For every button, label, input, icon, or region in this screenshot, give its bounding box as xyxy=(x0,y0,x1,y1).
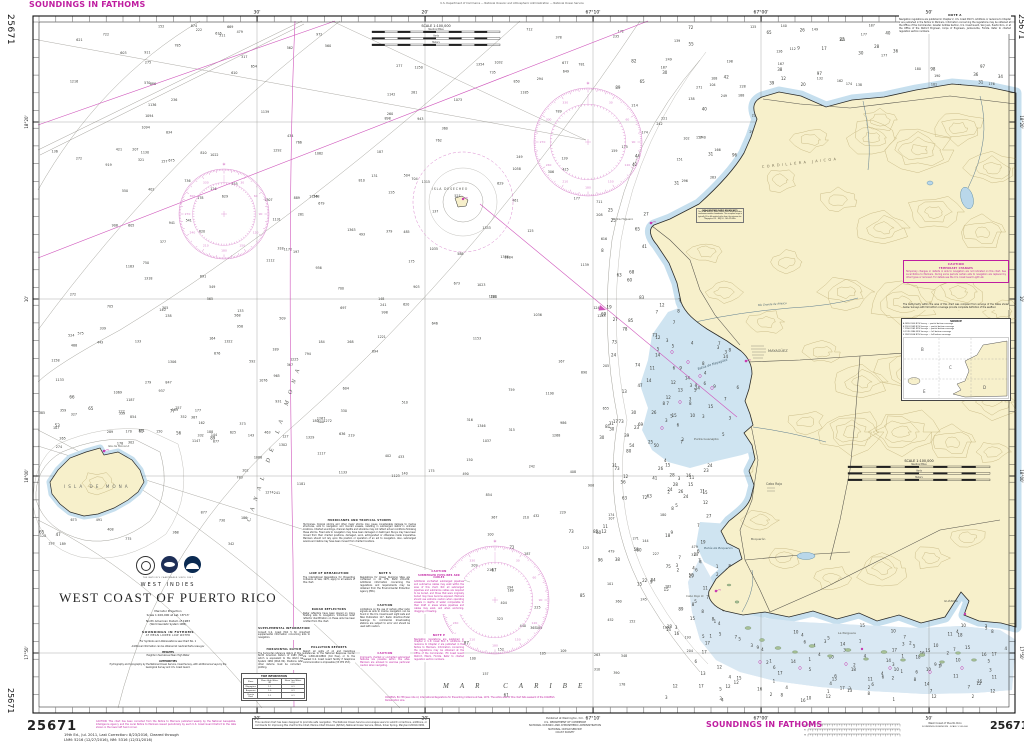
svg-text:143: 143 xyxy=(248,433,254,437)
source-diagram-map: BCDE xyxy=(903,337,1009,399)
svg-text:90: 90 xyxy=(632,140,636,144)
svg-text:34: 34 xyxy=(998,74,1004,79)
svg-text:187: 187 xyxy=(869,24,875,28)
svg-text:332: 332 xyxy=(197,434,203,438)
svg-text:3: 3 xyxy=(676,563,679,568)
svg-text:177: 177 xyxy=(861,33,867,37)
svg-text:1139: 1139 xyxy=(261,110,269,114)
label-guanica: GUÁNICA xyxy=(944,598,959,603)
svg-text:148: 148 xyxy=(378,297,384,301)
svg-text:11: 11 xyxy=(703,585,709,590)
svg-text:9: 9 xyxy=(671,530,674,535)
svg-text:180: 180 xyxy=(312,419,318,423)
svg-text:180: 180 xyxy=(660,513,666,517)
svg-text:9: 9 xyxy=(650,580,653,585)
svg-text:300: 300 xyxy=(190,194,196,198)
svg-text:911: 911 xyxy=(144,50,150,54)
svg-text:30': 30' xyxy=(254,10,261,16)
svg-text:443: 443 xyxy=(97,340,103,344)
svg-text:1117: 1117 xyxy=(317,452,325,456)
svg-text:509: 509 xyxy=(279,317,285,321)
label-mayaguez-city: MAYAGÜEZ xyxy=(768,348,788,353)
svg-text:7: 7 xyxy=(734,634,737,639)
svg-text:31: 31 xyxy=(612,463,618,468)
svg-text:152: 152 xyxy=(158,24,164,28)
svg-text:133: 133 xyxy=(237,309,243,313)
svg-text:479: 479 xyxy=(608,550,614,554)
svg-text:4: 4 xyxy=(704,370,707,375)
rose-north-star-icon: ✶ xyxy=(222,162,226,168)
svg-text:676: 676 xyxy=(214,352,220,356)
svg-text:10: 10 xyxy=(690,413,696,418)
label-cabo-rojo-light: Cabo Rojo Lt xyxy=(686,594,705,598)
svg-text:Meters: Meters xyxy=(432,41,440,44)
svg-text:28: 28 xyxy=(874,44,880,49)
svg-text:2: 2 xyxy=(909,640,912,645)
svg-text:30: 30 xyxy=(609,101,613,105)
svg-text:1346: 1346 xyxy=(477,424,485,428)
svg-text:1142: 1142 xyxy=(387,92,395,96)
authorities-text: Hydrography and topography by the Nation… xyxy=(108,663,228,669)
svg-text:479: 479 xyxy=(237,30,243,34)
svg-text:1112: 1112 xyxy=(266,259,274,263)
svg-text:67°00': 67°00' xyxy=(754,10,769,16)
source-note: The bathymetry within the area of this c… xyxy=(903,304,1009,310)
svg-text:10: 10 xyxy=(793,630,799,635)
svg-text:10: 10 xyxy=(689,573,695,578)
svg-text:415: 415 xyxy=(562,168,568,172)
svg-text:365: 365 xyxy=(530,626,536,630)
svg-text:Yards: Yards xyxy=(916,470,923,473)
svg-text:12: 12 xyxy=(734,680,740,685)
svg-text:377: 377 xyxy=(160,240,166,244)
svg-text:17: 17 xyxy=(778,671,784,676)
svg-text:180: 180 xyxy=(492,644,498,648)
svg-text:491: 491 xyxy=(96,518,102,522)
svg-text:646: 646 xyxy=(432,321,438,325)
svg-text:675: 675 xyxy=(168,158,174,162)
svg-text:367: 367 xyxy=(491,515,497,519)
svg-text:7: 7 xyxy=(678,555,681,560)
svg-text:36: 36 xyxy=(973,72,979,77)
svg-text:1302: 1302 xyxy=(279,443,287,447)
svg-text:4: 4 xyxy=(881,671,884,676)
svg-text:63: 63 xyxy=(647,494,653,499)
label-canal-de-la-mona: CANAL DE LA MONA xyxy=(246,362,303,523)
svg-text:1386: 1386 xyxy=(500,255,508,259)
colregs-note: COLREGS, 80.738 (see note A): Internatio… xyxy=(385,697,565,703)
svg-text:149: 149 xyxy=(812,27,818,31)
svg-text:616: 616 xyxy=(601,237,607,241)
svg-text:1306: 1306 xyxy=(168,360,176,364)
svg-text:5: 5 xyxy=(722,432,725,437)
svg-text:6: 6 xyxy=(695,659,698,664)
svg-text:55: 55 xyxy=(689,41,695,46)
svg-text:139: 139 xyxy=(561,157,567,161)
svg-text:20: 20 xyxy=(801,82,807,87)
svg-text:150: 150 xyxy=(515,637,521,641)
svg-text:1036: 1036 xyxy=(533,313,541,317)
svg-text:31: 31 xyxy=(708,152,714,157)
svg-text:323: 323 xyxy=(497,617,503,621)
svg-text:138: 138 xyxy=(856,83,862,87)
svg-text:621: 621 xyxy=(76,38,82,42)
svg-text:249: 249 xyxy=(666,57,672,61)
svg-text:235: 235 xyxy=(613,35,619,39)
svg-text:174: 174 xyxy=(846,82,852,86)
svg-text:5: 5 xyxy=(809,667,812,672)
rose-north-star-icon: ✶ xyxy=(586,81,590,87)
svg-text:306: 306 xyxy=(548,170,554,174)
svg-text:604: 604 xyxy=(343,386,349,390)
svg-text:592: 592 xyxy=(249,360,255,364)
svg-text:3: 3 xyxy=(665,695,668,700)
svg-text:669: 669 xyxy=(227,25,233,29)
svg-text:1250: 1250 xyxy=(414,66,422,70)
svg-text:140: 140 xyxy=(401,472,407,476)
svg-text:894: 894 xyxy=(372,349,378,353)
svg-text:189: 189 xyxy=(507,589,513,593)
svg-text:820: 820 xyxy=(199,229,205,233)
svg-text:12: 12 xyxy=(659,302,665,307)
svg-text:272: 272 xyxy=(76,156,82,160)
svg-text:12: 12 xyxy=(703,500,709,505)
svg-text:4: 4 xyxy=(761,647,764,652)
svg-text:20': 20' xyxy=(422,10,429,16)
svg-text:127: 127 xyxy=(282,434,288,438)
svg-text:65: 65 xyxy=(88,406,94,411)
svg-text:330: 330 xyxy=(341,409,347,413)
svg-text:15: 15 xyxy=(688,482,694,487)
svg-text:126: 126 xyxy=(776,49,782,53)
svg-text:588: 588 xyxy=(457,252,463,256)
svg-text:348: 348 xyxy=(621,654,627,658)
svg-text:5: 5 xyxy=(719,686,722,691)
svg-text:14: 14 xyxy=(646,378,652,383)
svg-text:9: 9 xyxy=(713,384,716,389)
pollution-reports-note: POLLUTION REPORTSReport all spills of oi… xyxy=(303,646,355,665)
nautical-chart-page: { "chart": { "number": "25671", "soundin… xyxy=(0,0,1024,745)
svg-text:360: 360 xyxy=(615,600,621,604)
svg-text:1032: 1032 xyxy=(494,60,502,64)
svg-text:998: 998 xyxy=(382,311,388,315)
tide-row: Puerto Real1.10.1 xyxy=(244,693,305,699)
svg-text:242: 242 xyxy=(529,465,535,469)
svg-text:40: 40 xyxy=(702,107,708,112)
svg-text:8: 8 xyxy=(867,691,870,696)
svg-text:40: 40 xyxy=(885,30,891,35)
svg-text:8: 8 xyxy=(914,677,917,682)
svg-text:7: 7 xyxy=(724,396,727,401)
svg-text:120: 120 xyxy=(532,621,538,625)
svg-text:6: 6 xyxy=(677,423,680,428)
svg-text:730: 730 xyxy=(219,518,225,522)
svg-text:673: 673 xyxy=(454,281,460,285)
svg-text:679: 679 xyxy=(318,202,324,206)
svg-text:65: 65 xyxy=(635,227,641,232)
svg-text:180: 180 xyxy=(585,186,591,190)
svg-text:138: 138 xyxy=(688,97,694,101)
svg-text:65: 65 xyxy=(640,79,646,84)
svg-text:4: 4 xyxy=(801,633,804,638)
svg-text:164: 164 xyxy=(209,337,215,341)
svg-text:359: 359 xyxy=(60,408,66,412)
svg-text:227: 227 xyxy=(653,552,659,556)
svg-text:490: 490 xyxy=(462,472,468,476)
svg-text:511: 511 xyxy=(219,34,225,38)
svg-text:1: 1 xyxy=(893,697,896,702)
svg-text:23: 23 xyxy=(634,425,640,430)
svg-text:4: 4 xyxy=(664,458,667,463)
svg-text:17°50': 17°50' xyxy=(1019,646,1024,659)
svg-text:385: 385 xyxy=(39,411,45,415)
svg-text:387: 387 xyxy=(191,416,197,420)
svg-text:Meters: Meters xyxy=(915,476,923,479)
svg-text:575: 575 xyxy=(77,332,83,336)
supplemental-note: SUPPLEMENTAL INFORMATIONConsult U.S. Coa… xyxy=(258,627,310,640)
svg-text:1023: 1023 xyxy=(477,283,485,287)
svg-text:10': 10' xyxy=(1019,296,1024,302)
svg-text:198: 198 xyxy=(727,59,733,63)
svg-text:50': 50' xyxy=(926,716,933,722)
svg-text:15: 15 xyxy=(925,648,931,653)
svg-text:610: 610 xyxy=(231,71,237,75)
svg-text:202: 202 xyxy=(242,469,248,473)
svg-text:174: 174 xyxy=(642,131,648,135)
svg-text:14: 14 xyxy=(655,353,661,358)
svg-text:5: 5 xyxy=(675,503,678,508)
svg-text:10: 10 xyxy=(891,628,897,633)
svg-text:22: 22 xyxy=(642,578,648,583)
svg-text:170: 170 xyxy=(126,429,132,433)
svg-text:18°00': 18°00' xyxy=(1019,469,1024,482)
svg-text:316: 316 xyxy=(467,418,473,422)
svg-text:7: 7 xyxy=(666,401,669,406)
svg-text:105: 105 xyxy=(540,651,546,655)
svg-text:74: 74 xyxy=(635,363,641,368)
svg-text:1163: 1163 xyxy=(126,265,134,269)
svg-text:1: 1 xyxy=(901,669,904,674)
svg-text:B: B xyxy=(921,347,924,352)
svg-text:177: 177 xyxy=(195,408,201,412)
svg-text:14: 14 xyxy=(840,641,846,646)
svg-text:404: 404 xyxy=(501,601,507,605)
svg-text:139: 139 xyxy=(674,39,680,43)
svg-text:1292: 1292 xyxy=(273,149,281,153)
svg-text:452: 452 xyxy=(607,618,613,622)
svg-text:268: 268 xyxy=(347,340,353,344)
svg-text:15: 15 xyxy=(860,623,866,628)
svg-text:242: 242 xyxy=(656,122,662,126)
svg-text:700: 700 xyxy=(338,286,344,290)
svg-text:109: 109 xyxy=(560,649,566,653)
svg-text:3: 3 xyxy=(751,643,754,648)
svg-text:13: 13 xyxy=(700,671,706,676)
svg-text:8: 8 xyxy=(729,348,732,353)
svg-text:222: 222 xyxy=(196,28,202,32)
svg-text:677: 677 xyxy=(562,61,568,65)
svg-text:18: 18 xyxy=(665,533,671,538)
source-diagram: SOURCE A 1899-1900 NOS Survey — partial … xyxy=(901,318,1011,401)
svg-text:5: 5 xyxy=(702,634,705,639)
agency-seals xyxy=(38,556,298,575)
svg-text:265: 265 xyxy=(59,436,65,440)
svg-text:275: 275 xyxy=(145,60,151,64)
svg-text:271: 271 xyxy=(633,536,639,540)
svg-text:330: 330 xyxy=(203,180,209,184)
svg-text:17: 17 xyxy=(822,46,828,51)
svg-text:157: 157 xyxy=(482,672,488,676)
svg-text:1088: 1088 xyxy=(254,455,262,459)
svg-text:972: 972 xyxy=(316,32,322,36)
svg-text:39: 39 xyxy=(624,433,630,438)
radio-caution-note: CAUTIONLimitations on the use of certain… xyxy=(360,604,410,629)
svg-text:31: 31 xyxy=(978,80,984,85)
svg-text:318: 318 xyxy=(490,295,496,299)
svg-text:120: 120 xyxy=(40,534,46,538)
svg-text:72: 72 xyxy=(688,25,694,30)
svg-text:18°20': 18°20' xyxy=(24,115,29,128)
svg-text:402: 402 xyxy=(148,187,154,191)
svg-text:14: 14 xyxy=(886,658,892,663)
svg-text:3: 3 xyxy=(989,667,992,672)
svg-text:193: 193 xyxy=(48,541,54,545)
svg-text:1139: 1139 xyxy=(580,263,588,267)
svg-text:781: 781 xyxy=(578,62,584,66)
demarcation-note: LINE OF DEMARCATIONThe International Reg… xyxy=(303,572,355,585)
svg-text:1153: 1153 xyxy=(473,337,481,341)
svg-text:3: 3 xyxy=(702,414,705,419)
svg-text:83: 83 xyxy=(639,295,645,300)
svg-text:63: 63 xyxy=(617,273,623,278)
svg-text:162: 162 xyxy=(837,79,843,83)
svg-text:11: 11 xyxy=(992,674,998,679)
svg-text:854: 854 xyxy=(130,415,136,419)
svg-text:1130: 1130 xyxy=(141,150,149,154)
svg-text:16: 16 xyxy=(674,631,680,636)
svg-text:6: 6 xyxy=(804,639,807,644)
svg-text:30: 30 xyxy=(631,410,637,415)
svg-text:8: 8 xyxy=(701,609,704,614)
svg-text:889: 889 xyxy=(294,196,300,200)
svg-text:69: 69 xyxy=(601,312,607,317)
svg-text:180: 180 xyxy=(221,249,227,253)
svg-text:124: 124 xyxy=(593,306,599,310)
svg-text:1073: 1073 xyxy=(454,98,462,102)
svg-text:7: 7 xyxy=(953,647,956,652)
svg-text:11: 11 xyxy=(947,631,953,636)
svg-text:289: 289 xyxy=(107,430,113,434)
svg-text:205: 205 xyxy=(603,364,609,368)
svg-text:63: 63 xyxy=(622,495,628,500)
svg-text:3: 3 xyxy=(665,418,668,423)
svg-text:197: 197 xyxy=(293,250,299,254)
svg-text:705: 705 xyxy=(107,304,113,308)
svg-text:60: 60 xyxy=(627,277,633,282)
svg-text:655: 655 xyxy=(603,406,609,410)
symbols-note: For Symbols and Abbreviations see Chart … xyxy=(38,640,298,643)
svg-text:89: 89 xyxy=(615,85,621,90)
svg-text:937: 937 xyxy=(159,389,165,393)
svg-text:625: 625 xyxy=(230,431,236,435)
svg-text:15: 15 xyxy=(690,616,696,621)
svg-text:30: 30 xyxy=(599,435,605,440)
svg-text:485: 485 xyxy=(403,230,409,234)
label-isla-desecheo: ISLA DESECHEO xyxy=(432,187,468,191)
svg-text:210: 210 xyxy=(523,515,529,519)
hurricanes-note: HURRICANES AND TROPICAL STORMSHurricanes… xyxy=(303,519,416,544)
svg-text:60: 60 xyxy=(254,194,258,198)
svg-text:673: 673 xyxy=(70,518,76,522)
svg-text:125: 125 xyxy=(750,25,756,29)
svg-text:1333: 1333 xyxy=(482,226,490,230)
svg-text:112: 112 xyxy=(790,47,796,51)
svg-text:330: 330 xyxy=(562,101,568,105)
svg-text:47: 47 xyxy=(637,383,643,388)
svg-text:421: 421 xyxy=(116,148,122,152)
svg-text:23: 23 xyxy=(704,468,710,473)
svg-text:27: 27 xyxy=(644,212,650,217)
svg-text:18°00': 18°00' xyxy=(24,469,29,482)
svg-text:85: 85 xyxy=(628,318,634,323)
svg-text:10: 10 xyxy=(933,643,939,648)
svg-text:65: 65 xyxy=(767,30,773,35)
svg-text:15: 15 xyxy=(965,645,971,650)
svg-text:10: 10 xyxy=(961,623,967,628)
svg-text:360: 360 xyxy=(442,126,448,130)
svg-text:15: 15 xyxy=(708,404,714,409)
svg-text:2: 2 xyxy=(868,685,871,690)
svg-text:12: 12 xyxy=(826,694,832,699)
svg-text:4: 4 xyxy=(785,685,788,690)
svg-text:898: 898 xyxy=(384,116,390,120)
svg-text:270: 270 xyxy=(540,140,546,144)
nos-seal-icon xyxy=(161,556,178,573)
svg-text:735: 735 xyxy=(489,70,495,74)
svg-text:1315: 1315 xyxy=(422,180,430,184)
svg-text:73: 73 xyxy=(612,339,618,344)
caution-box: CAUTION TEMPORARY CHANGES Temporary chan… xyxy=(903,260,1009,283)
svg-text:78: 78 xyxy=(622,327,628,332)
pipelines-caution-note: CAUTION SUBMERGED PIPELINES AND CABLES A… xyxy=(414,570,464,614)
svg-text:620: 620 xyxy=(403,303,409,307)
compass-rose: 306090120150180210240270300330✶ xyxy=(179,162,269,259)
svg-text:41: 41 xyxy=(642,244,648,249)
svg-text:402: 402 xyxy=(385,454,391,458)
svg-text:132: 132 xyxy=(817,77,823,81)
svg-text:943: 943 xyxy=(417,117,423,121)
svg-text:310: 310 xyxy=(594,668,600,672)
svg-text:352: 352 xyxy=(180,415,186,419)
svg-text:568: 568 xyxy=(234,313,240,317)
svg-text:184: 184 xyxy=(318,340,324,344)
svg-text:10: 10 xyxy=(926,667,932,672)
svg-text:433: 433 xyxy=(398,455,404,459)
svg-text:281: 281 xyxy=(298,213,304,217)
svg-text:10: 10 xyxy=(806,696,812,701)
svg-text:M: M xyxy=(804,735,806,737)
svg-text:321: 321 xyxy=(138,158,144,162)
svg-text:245: 245 xyxy=(641,598,647,602)
svg-text:97: 97 xyxy=(817,71,823,76)
svg-text:19: 19 xyxy=(700,540,706,545)
chart-title: WEST COAST OF PUERTO RICO xyxy=(38,590,298,606)
svg-text:120: 120 xyxy=(253,230,259,234)
svg-text:102: 102 xyxy=(683,136,689,140)
svg-text:73: 73 xyxy=(619,419,625,424)
svg-text:1216: 1216 xyxy=(70,80,78,84)
svg-text:221: 221 xyxy=(661,116,667,120)
